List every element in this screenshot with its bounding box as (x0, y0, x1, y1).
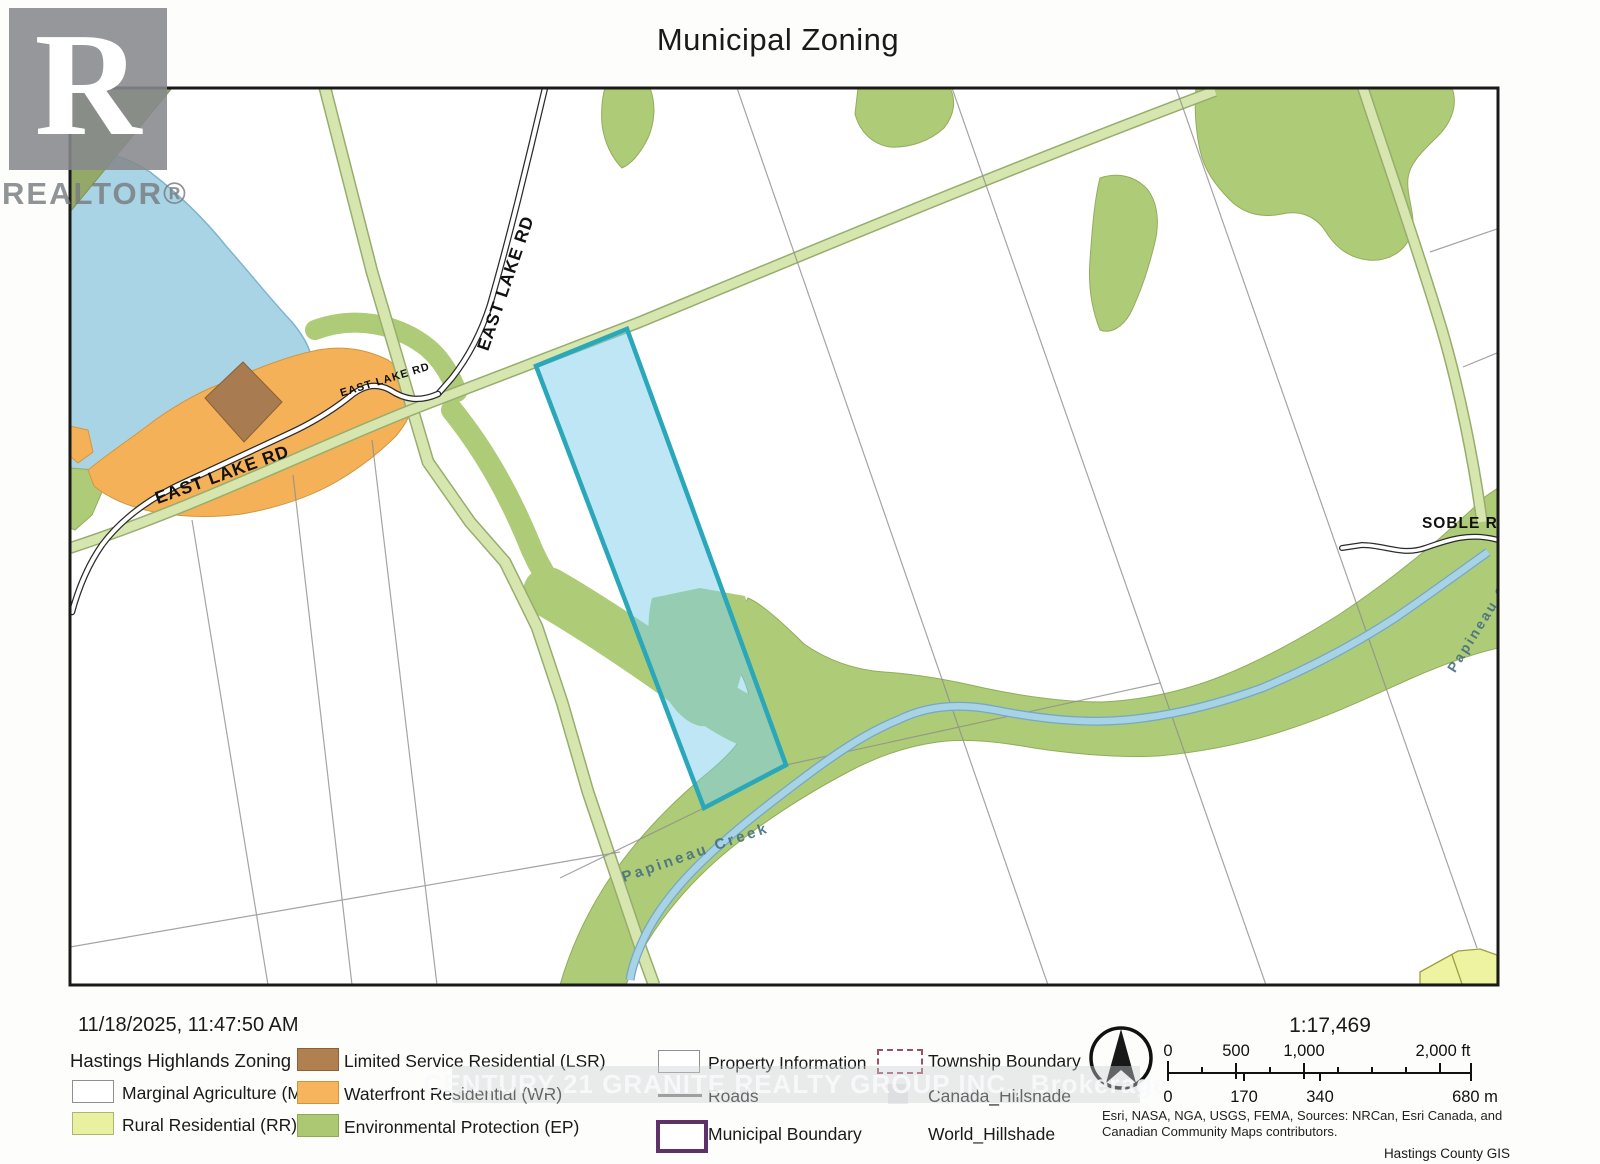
legend-label-wr: Waterfront Residential (WR) (344, 1084, 562, 1105)
attribution-line2: Canadian Community Maps contributors. (1102, 1124, 1504, 1140)
legend-label-ep: Environmental Protection (EP) (344, 1117, 579, 1138)
realtor-wordmark: REALTOR® (2, 176, 222, 212)
legend-swatch-ma (72, 1080, 114, 1103)
scale-ratio: 1:17,469 (1270, 1014, 1390, 1038)
legend-swatch-roads (658, 1094, 702, 1097)
legend-label-rr: Rural Residential (RR) (122, 1115, 297, 1136)
legend-swatch-canada-hillshade (888, 1084, 908, 1104)
legend-label-township-boundary: Township Boundary (928, 1051, 1081, 1072)
legend-swatch-ep (297, 1114, 339, 1137)
gis-credit: Hastings County GIS (1250, 1146, 1510, 1161)
scale-m-170: 170 (1230, 1088, 1258, 1106)
legend-title: Hastings Highlands Zoning (70, 1050, 291, 1072)
legend-swatch-township-boundary (877, 1049, 923, 1074)
legend-label-property-info: Property Information (708, 1053, 867, 1074)
scale-ft-2000: 2,000 ft (1415, 1042, 1470, 1060)
legend-swatch-municipal-boundary (656, 1120, 708, 1153)
attribution-line1: Esri, NASA, NGA, USGS, FEMA, Sources: NR… (1102, 1108, 1504, 1124)
legend-label-ma: Marginal Agriculture (MA) (122, 1083, 319, 1104)
scale-ft-1000: 1,000 (1283, 1042, 1324, 1060)
legend-swatch-rr (72, 1112, 114, 1135)
map-timestamp: 11/18/2025, 11:47:50 AM (78, 1014, 299, 1037)
zoning-map-page: EAST LAKE RD EAST LAKE RD EAST LAKE RD S… (0, 0, 1600, 1164)
map-content: EAST LAKE RD EAST LAKE RD EAST LAKE RD S… (70, 88, 1532, 985)
legend-label-municipal-boundary: Municipal Boundary (708, 1124, 862, 1145)
scale-m-340: 340 (1306, 1088, 1334, 1106)
scale-m-680: 680 m (1452, 1088, 1498, 1106)
legend-swatch-property-info (658, 1050, 700, 1073)
scale-m-0: 0 (1163, 1088, 1172, 1106)
legend-label-canada-hillshade: Canada_Hillshade (928, 1086, 1071, 1107)
realtor-logo-r-icon: R (35, 11, 142, 159)
legend-swatch-lsr (297, 1048, 339, 1071)
legend-label-roads: Roads (708, 1086, 759, 1107)
scale-ft-500: 500 (1222, 1042, 1250, 1060)
data-attribution: Esri, NASA, NGA, USGS, FEMA, Sources: NR… (1102, 1108, 1504, 1141)
legend-label-world-hillshade: World_Hillshade (928, 1124, 1055, 1145)
legend-swatch-wr (297, 1081, 339, 1104)
scale-bar: 0 500 1,000 2,000 ft 0 170 340 680 m (1140, 1038, 1510, 1108)
zoning-map: EAST LAKE RD EAST LAKE RD EAST LAKE RD S… (0, 0, 1600, 1164)
realtor-logo: R (9, 8, 167, 170)
page-title: Municipal Zoning (0, 22, 1556, 58)
legend-label-lsr: Limited Service Residential (LSR) (344, 1051, 606, 1072)
scale-ft-0: 0 (1163, 1042, 1172, 1060)
